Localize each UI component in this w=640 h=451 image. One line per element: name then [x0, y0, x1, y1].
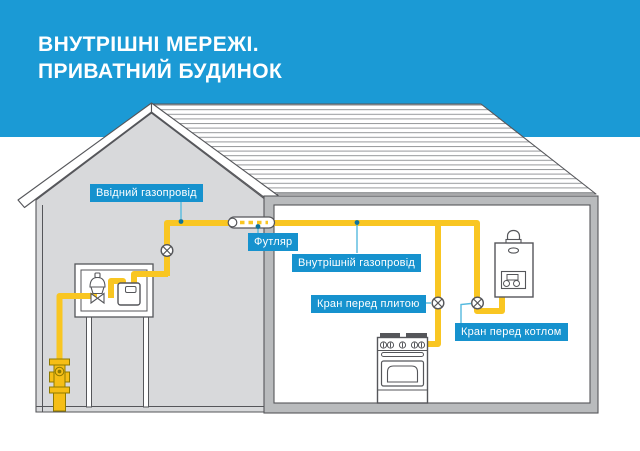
stove: [378, 333, 428, 403]
leader-dot: [179, 219, 184, 224]
label-inlet-pipe: Ввідний газопровід: [90, 184, 203, 202]
label-sleeve: Футляр: [248, 233, 298, 251]
leader-dot: [355, 220, 360, 225]
label-valve-before-stove: Кран перед плитою: [311, 295, 426, 313]
leader-dot: [256, 224, 261, 229]
page-title: ВНУТРІШНІ МЕРЕЖІ. ПРИВАТНИЙ БУДИНОК: [38, 31, 282, 85]
gas-meter: [118, 283, 140, 305]
sleeve: [228, 217, 274, 228]
valve-icon-inlet: [161, 245, 173, 257]
page-title-line2: ПРИВАТНИЙ БУДИНОК: [38, 58, 282, 85]
infographic-internal-gas-networks: ВНУТРІШНІ МЕРЕЖІ. ПРИВАТНИЙ БУДИНОК Ввід…: [0, 0, 640, 451]
label-internal-pipe: Внутрішній газопровід: [292, 254, 421, 272]
valve-icon-stove: [432, 297, 444, 309]
label-valve-before-boiler: Кран перед котлом: [455, 323, 568, 341]
page-title-line1: ВНУТРІШНІ МЕРЕЖІ.: [38, 31, 282, 58]
valve-icon-boiler: [472, 297, 484, 309]
